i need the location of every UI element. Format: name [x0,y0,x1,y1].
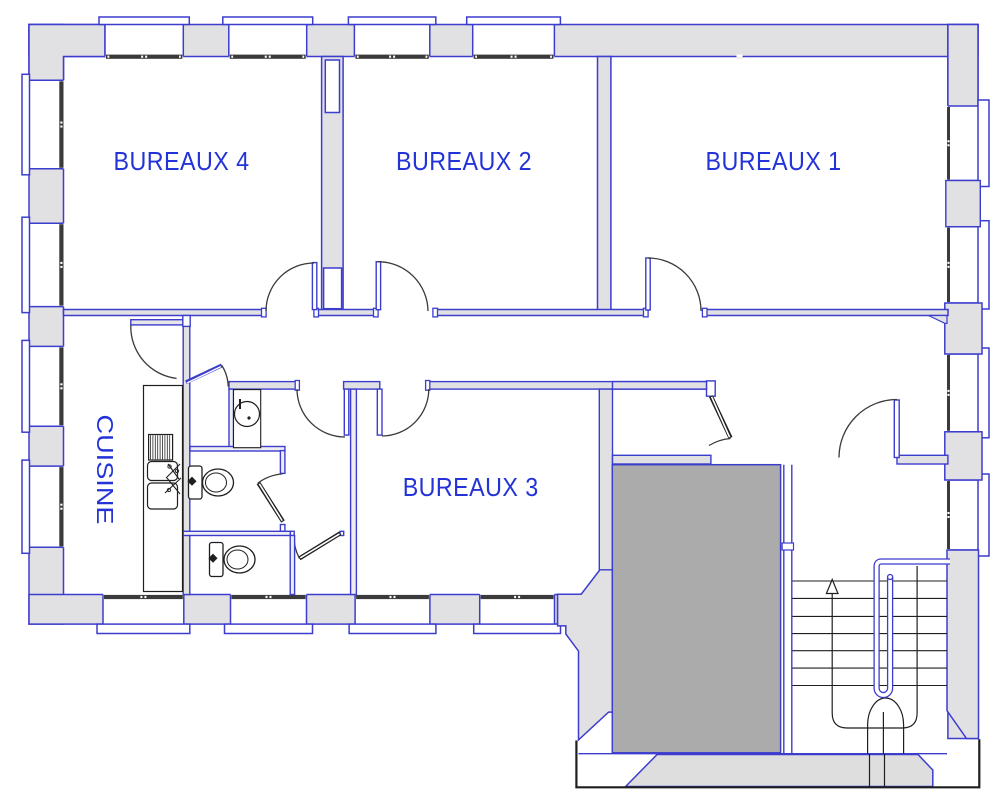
svg-text:CUISINE: CUISINE [92,415,118,525]
svg-text:BUREAUX 1: BUREAUX 1 [706,146,842,176]
svg-text:BUREAUX 4: BUREAUX 4 [114,146,250,176]
svg-text:BUREAUX 3: BUREAUX 3 [403,472,539,502]
svg-text:BUREAUX 2: BUREAUX 2 [396,146,532,176]
